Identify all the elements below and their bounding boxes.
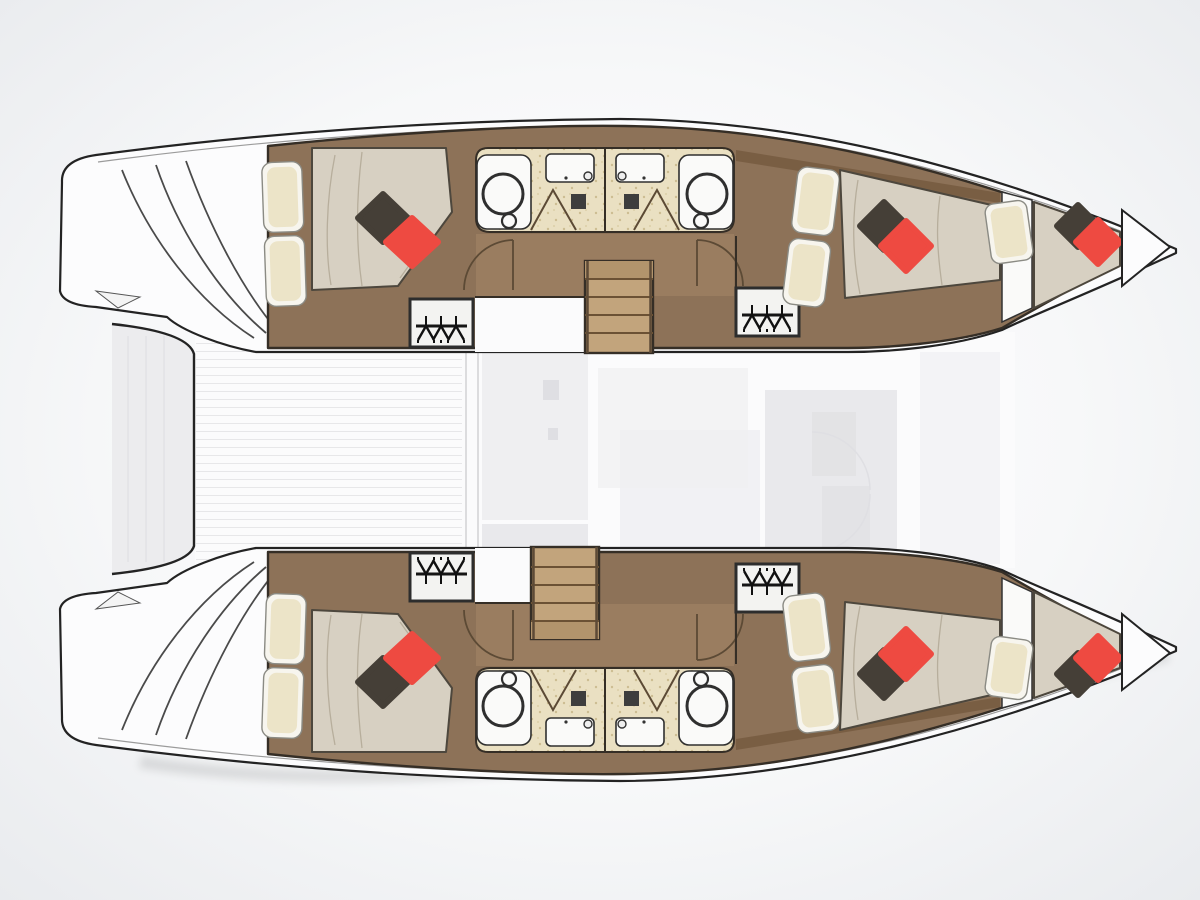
catamaran-deck-plan bbox=[0, 0, 1200, 900]
saloon-ghost-furniture bbox=[482, 352, 1000, 564]
aft-platform bbox=[112, 324, 194, 574]
floorplan-canvas bbox=[0, 0, 1200, 900]
stairs-starboard bbox=[531, 547, 599, 639]
stairs-port bbox=[585, 261, 653, 353]
saloon-bridgedeck bbox=[112, 324, 1015, 574]
cockpit-teak-planks bbox=[196, 336, 462, 564]
